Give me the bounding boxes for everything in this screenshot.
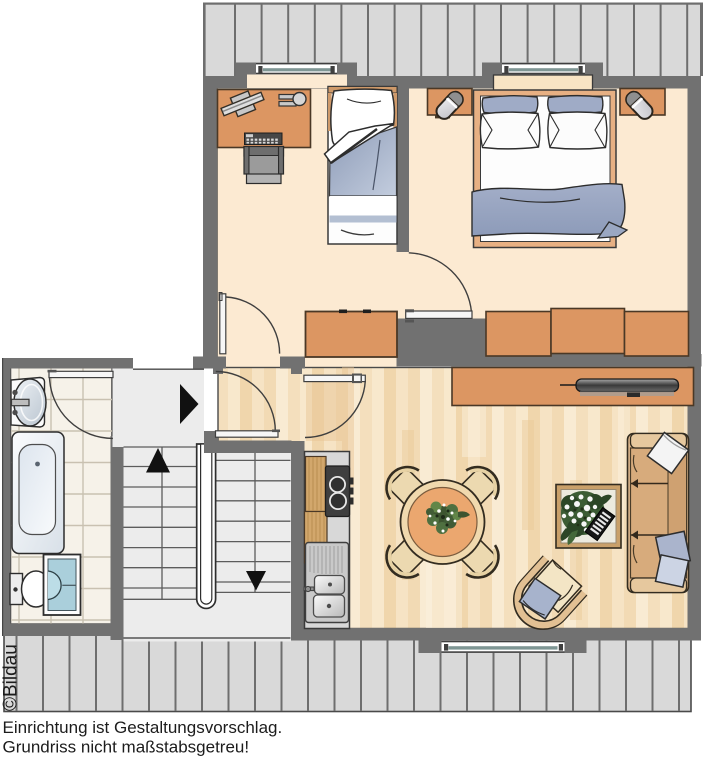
svg-text:Einrichtung ist Gestaltungsvor: Einrichtung ist Gestaltungsvorschlag. (3, 718, 283, 737)
svg-text:Grundriss nicht maßstabsgetreu: Grundriss nicht maßstabsgetreu! (3, 738, 250, 757)
svg-text:©Bildau: ©Bildau (1, 644, 22, 711)
